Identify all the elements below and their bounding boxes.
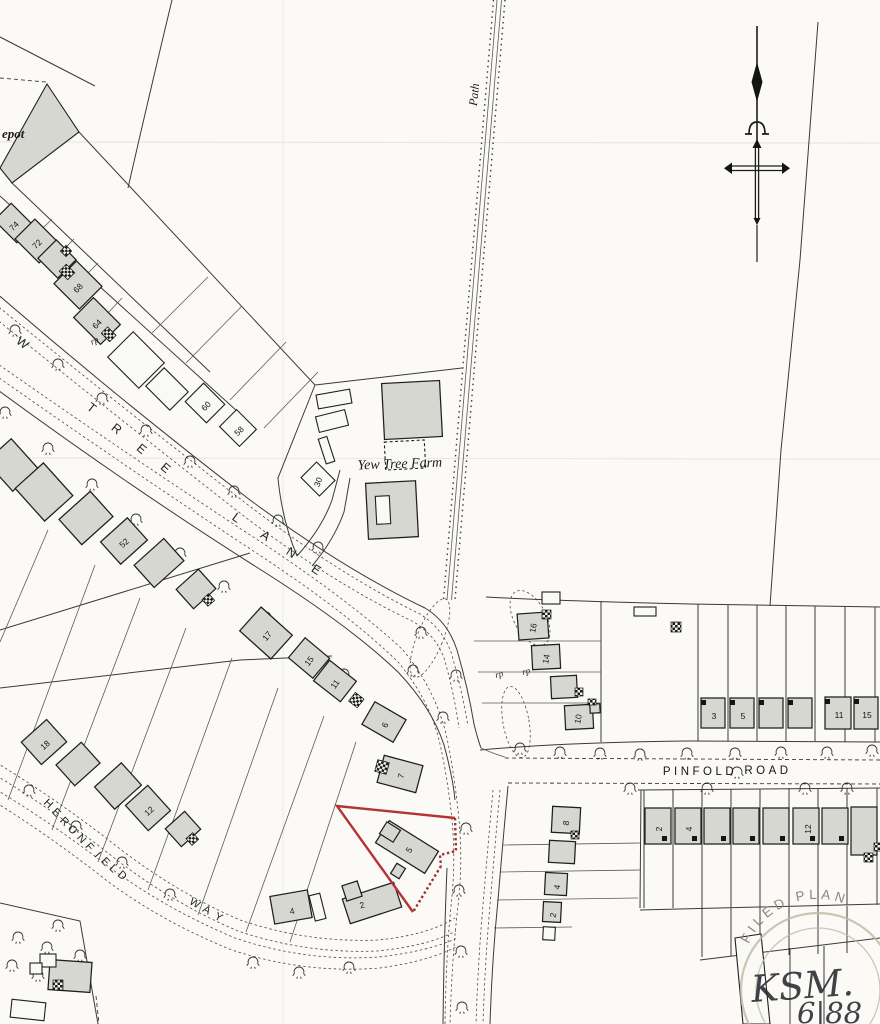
handwritten-date: 6|88 <box>797 996 862 1024</box>
farm-label: Yew Tree Farm <box>357 456 442 474</box>
street-letter: E <box>309 562 324 578</box>
tree-icon <box>293 967 306 979</box>
rp-label: rp <box>494 668 505 680</box>
street-letter: N <box>284 544 299 561</box>
street-letter: A <box>258 528 273 545</box>
tree-icon <box>218 581 231 593</box>
path-label: Path <box>466 83 482 108</box>
scan-fold-lines <box>0 0 880 1024</box>
tree-icon <box>42 443 55 455</box>
tree-icon <box>866 745 879 757</box>
tree-icon <box>701 783 714 795</box>
house-number: 16 <box>527 622 539 633</box>
house-number: 3 <box>712 711 717 721</box>
depot-label: epot <box>2 126 25 141</box>
house-number: 5 <box>741 711 746 721</box>
tree-icon <box>52 359 65 371</box>
tree-icon <box>821 747 834 759</box>
site-plan-map: 74 72 68 64 60 58 30 52 17 15 11 6 7 5 2… <box>0 0 880 1024</box>
street-letter: F <box>83 841 97 854</box>
house-number: 10 <box>572 713 584 724</box>
tree-icon <box>9 325 22 337</box>
filed-plan-scan: 74 72 68 64 60 58 30 52 17 15 11 6 7 5 2… <box>0 0 880 1024</box>
tree-icon <box>164 889 177 901</box>
street-letter: E <box>158 460 173 476</box>
tree-icon <box>343 962 356 974</box>
tree-icon <box>52 920 65 932</box>
tree-icon <box>455 946 468 958</box>
tree-icon <box>729 748 742 760</box>
tree-icon <box>624 783 637 795</box>
tree-icon <box>41 942 54 954</box>
house-number: 4 <box>684 826 694 831</box>
street-letter: E <box>134 441 149 457</box>
tree-icon <box>594 748 607 760</box>
tree-icon <box>450 670 463 682</box>
street-letter: I <box>92 850 103 860</box>
street-letter: D <box>115 869 129 883</box>
tree-icon <box>74 950 87 962</box>
street-letter: A <box>200 903 213 917</box>
buildings <box>0 84 880 1021</box>
tree-icon <box>775 747 788 759</box>
tree-icon <box>681 748 694 760</box>
house-number: 2 <box>654 826 664 831</box>
house-number: 12 <box>803 824 813 834</box>
tree-icon <box>86 479 99 491</box>
tree-icon <box>456 1002 469 1014</box>
tree-icon <box>140 425 153 437</box>
house-number: 11 <box>835 710 844 720</box>
tree-icon <box>12 932 25 944</box>
street-letter: T <box>84 400 99 416</box>
street-name-road: ROAD <box>744 765 791 777</box>
house-number: 15 <box>862 710 872 720</box>
tree-icon <box>514 743 527 755</box>
rp-label: rp <box>521 665 532 677</box>
street-letter: R <box>109 421 125 438</box>
tree-icon <box>0 407 11 419</box>
tree-icon <box>460 823 473 835</box>
street-letter: O <box>65 823 80 838</box>
tree-icon <box>247 957 260 969</box>
cross-symbol-icon <box>724 26 790 262</box>
tree-icon <box>6 960 19 972</box>
street-name-pinfold: PINFOLD <box>663 766 737 778</box>
tree-icon <box>23 785 36 797</box>
tree-icon <box>554 747 567 759</box>
street-letter: Y <box>212 910 225 924</box>
house-number: 14 <box>540 653 552 664</box>
plot-boundary-lines <box>0 0 880 1024</box>
street-letter: H <box>41 797 55 811</box>
street-letter: W <box>13 334 31 352</box>
